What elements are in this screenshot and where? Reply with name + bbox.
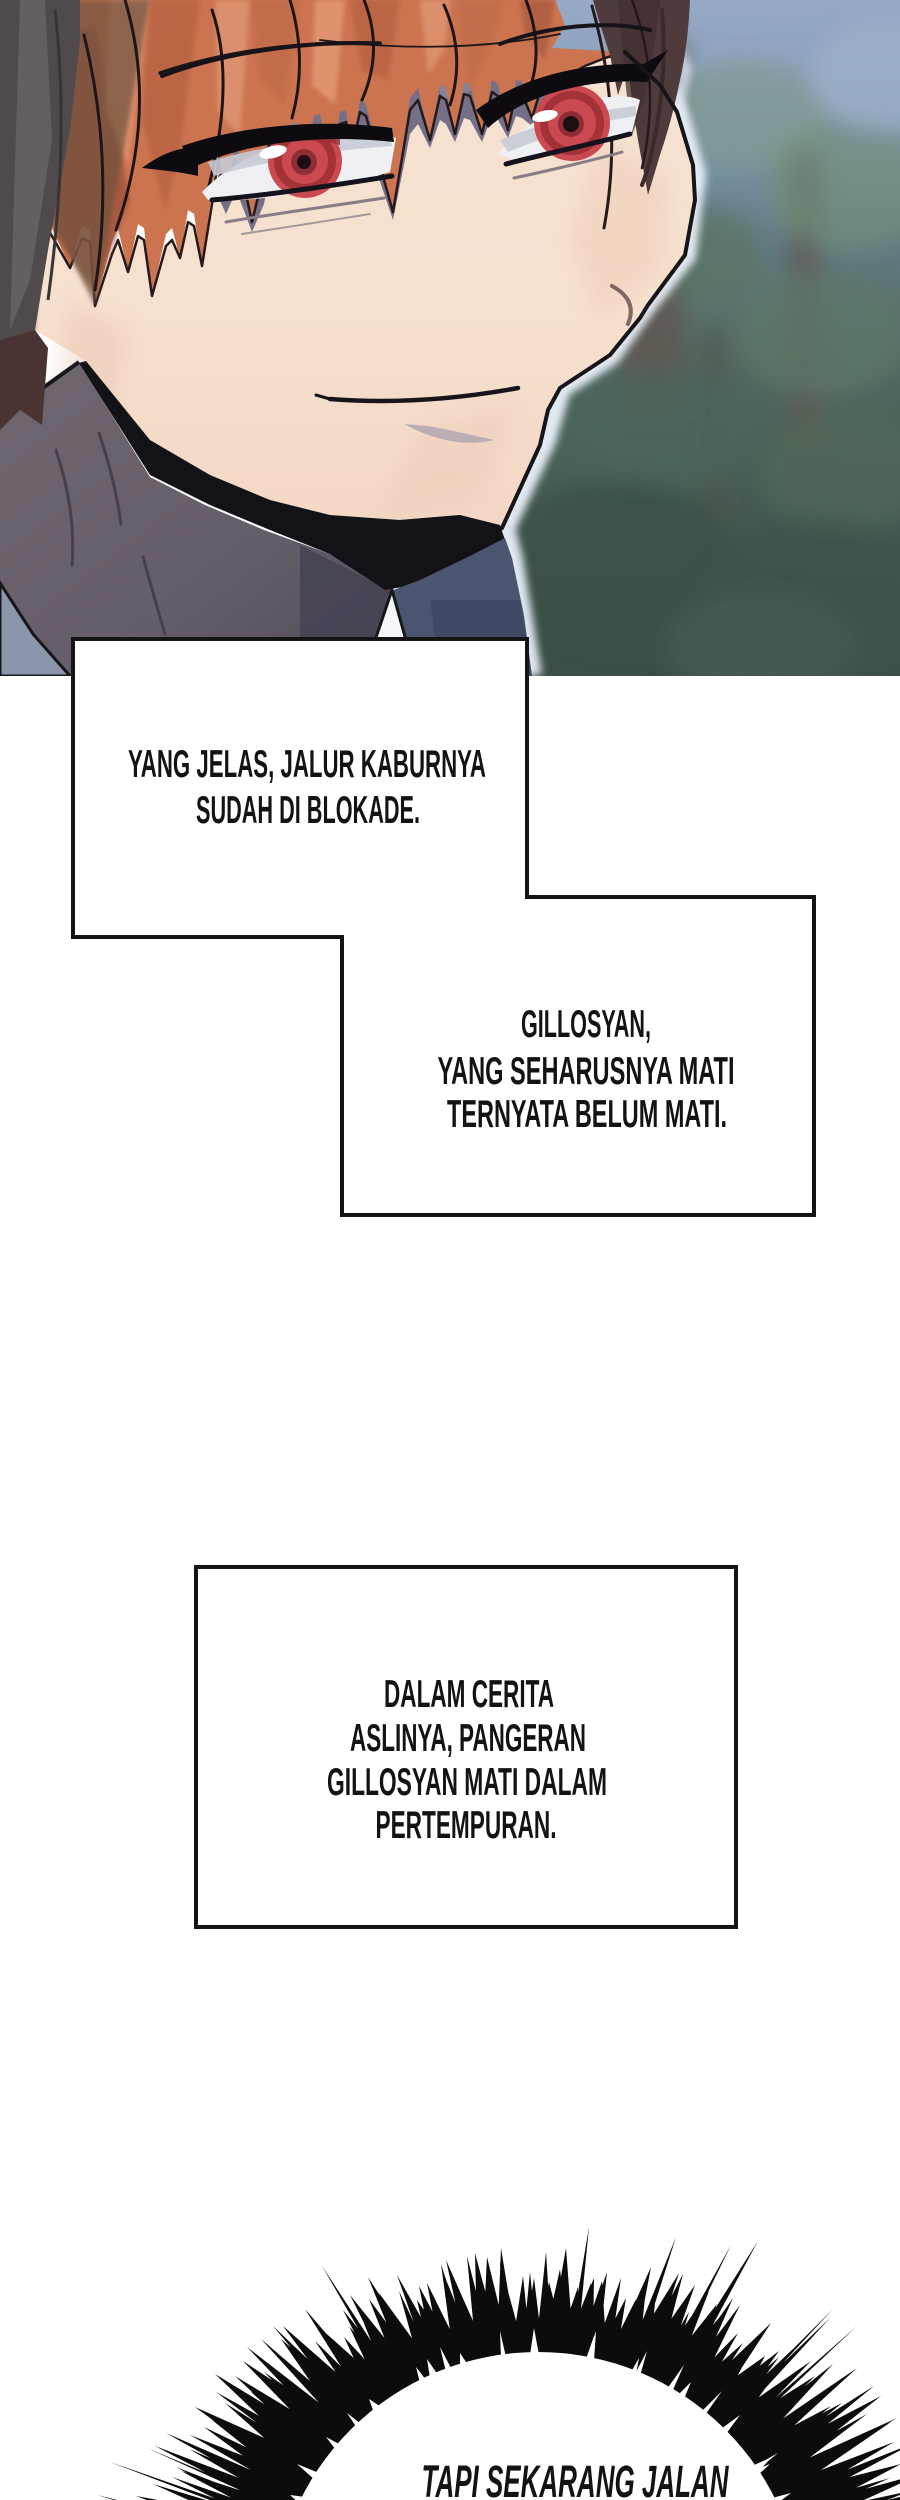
svg-text:YANG JELAS, JALUR KABURNYA: YANG JELAS, JALUR KABURNYA (128, 743, 486, 786)
svg-text:TAPI SEKARANG JALAN: TAPI SEKARANG JALAN (422, 2456, 730, 2500)
svg-text:ASLINYA, PANGERAN: ASLINYA, PANGERAN (350, 1717, 586, 1760)
svg-text:GILLOSYAN,: GILLOSYAN, (521, 1003, 651, 1046)
svg-text:YANG SEHARUSNYA MATI: YANG SEHARUSNYA MATI (438, 1050, 735, 1093)
svg-text:DALAM CERITA: DALAM CERITA (384, 1673, 554, 1716)
svg-text:TERNYATA BELUM MATI.: TERNYATA BELUM MATI. (447, 1093, 727, 1136)
svg-text:PERTEMPURAN.: PERTEMPURAN. (376, 1804, 557, 1847)
svg-text:SUDAH DI BLOKADE.: SUDAH DI BLOKADE. (196, 789, 420, 832)
svg-text:GILLOSYAN MATI DALAM: GILLOSYAN MATI DALAM (327, 1761, 607, 1804)
